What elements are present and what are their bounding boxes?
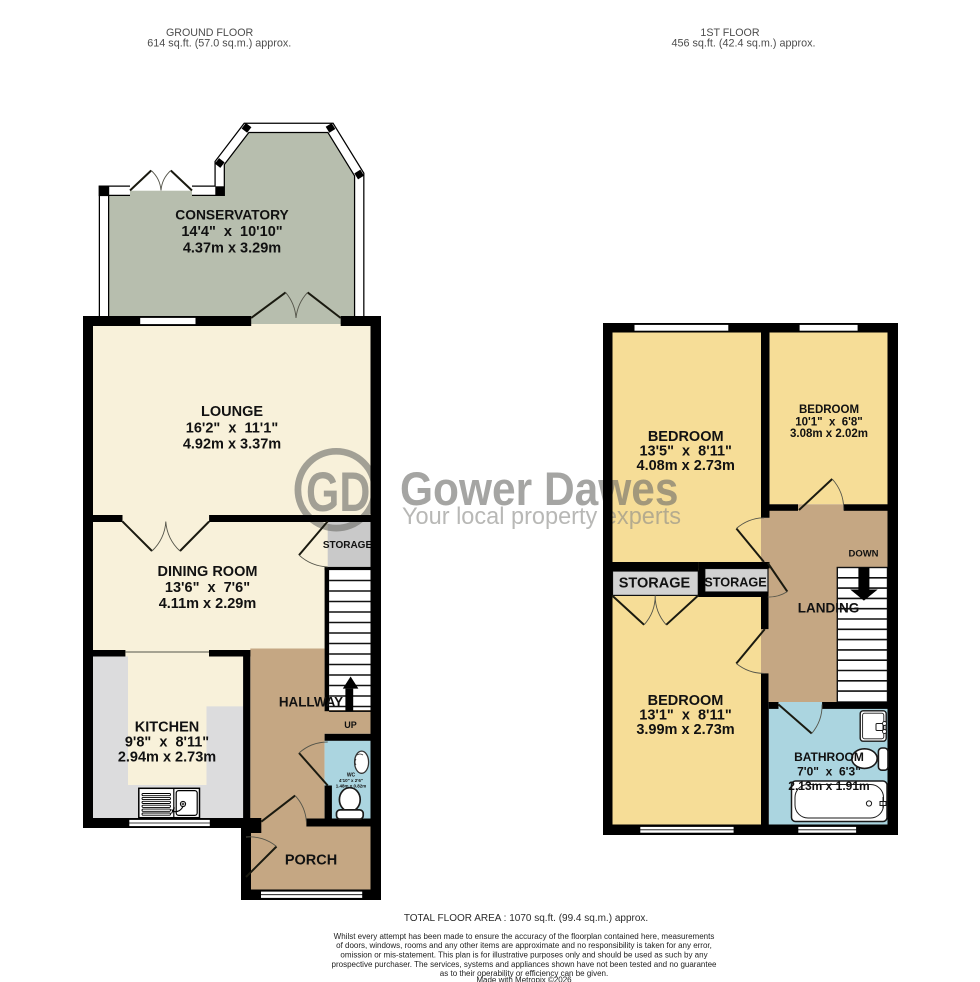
svg-text:14'4" x 10'10": 14'4" x 10'10"	[181, 224, 282, 240]
svg-text:BEDROOM: BEDROOM	[799, 404, 859, 416]
svg-text:4.37m x 3.29m: 4.37m x 3.29m	[183, 241, 281, 257]
svg-text:7'0" x 6'3": 7'0" x 6'3"	[797, 765, 861, 779]
svg-text:13'6" x 7'6": 13'6" x 7'6"	[165, 580, 250, 596]
svg-text:of doors, windows, rooms and a: of doors, windows, rooms and any other i…	[336, 941, 712, 950]
svg-text:LOUNGE: LOUNGE	[201, 404, 263, 420]
svg-text:16'2" x 11'1": 16'2" x 11'1"	[186, 421, 278, 437]
svg-text:STORAGE: STORAGE	[704, 576, 767, 590]
svg-text:9'8" x 8'11": 9'8" x 8'11"	[125, 735, 209, 751]
svg-text:1.48m x 0.82m: 1.48m x 0.82m	[336, 784, 367, 789]
svg-text:STORAGE: STORAGE	[619, 576, 691, 592]
svg-text:HALLWAY: HALLWAY	[279, 695, 343, 710]
svg-text:LANDING: LANDING	[798, 601, 860, 616]
svg-text:Whilst every attempt has been: Whilst every attempt has been made to en…	[334, 932, 715, 941]
svg-text:4'10" x 2'6": 4'10" x 2'6"	[339, 778, 363, 783]
svg-text:BATHROOM: BATHROOM	[794, 750, 864, 764]
svg-text:10'1" x 6'8": 10'1" x 6'8"	[795, 417, 863, 429]
svg-text:2.94m x 2.73m: 2.94m x 2.73m	[118, 750, 216, 766]
svg-text:Made with Metropix ©2026: Made with Metropix ©2026	[476, 976, 572, 982]
svg-text:prospective purchaser. The ser: prospective purchaser. The services, sys…	[332, 960, 718, 969]
svg-text:3.99m x 2.73m: 3.99m x 2.73m	[636, 722, 734, 738]
svg-text:UP: UP	[344, 720, 357, 730]
svg-text:STORAGE: STORAGE	[323, 540, 373, 551]
svg-text:4.92m x 3.37m: 4.92m x 3.37m	[183, 437, 281, 453]
svg-text:TOTAL FLOOR AREA : 1070 sq.ft.: TOTAL FLOOR AREA : 1070 sq.ft. (99.4 sq.…	[404, 913, 648, 924]
svg-text:KITCHEN: KITCHEN	[135, 720, 199, 736]
svg-text:614 sq.ft. (57.0 sq.m.) approx: 614 sq.ft. (57.0 sq.m.) approx.	[147, 38, 291, 50]
svg-text:3.08m x 2.02m: 3.08m x 2.02m	[790, 428, 868, 440]
svg-text:GD: GD	[306, 460, 370, 523]
svg-text:Your local property experts: Your local property experts	[402, 503, 681, 530]
svg-text:DOWN: DOWN	[848, 549, 878, 560]
svg-text:PORCH: PORCH	[285, 853, 337, 869]
svg-text:2.13m x 1.91m: 2.13m x 1.91m	[788, 779, 869, 793]
svg-text:CONSERVATORY: CONSERVATORY	[175, 208, 288, 223]
svg-text:omission or mis-statement. Thi: omission or mis-statement. This plan is …	[340, 951, 707, 960]
svg-text:4.08m x 2.73m: 4.08m x 2.73m	[637, 458, 735, 474]
svg-text:DINING ROOM: DINING ROOM	[158, 564, 258, 580]
svg-text:4.11m x 2.29m: 4.11m x 2.29m	[159, 596, 257, 612]
svg-text:456 sq.ft. (42.4 sq.m.) approx: 456 sq.ft. (42.4 sq.m.) approx.	[671, 38, 815, 50]
